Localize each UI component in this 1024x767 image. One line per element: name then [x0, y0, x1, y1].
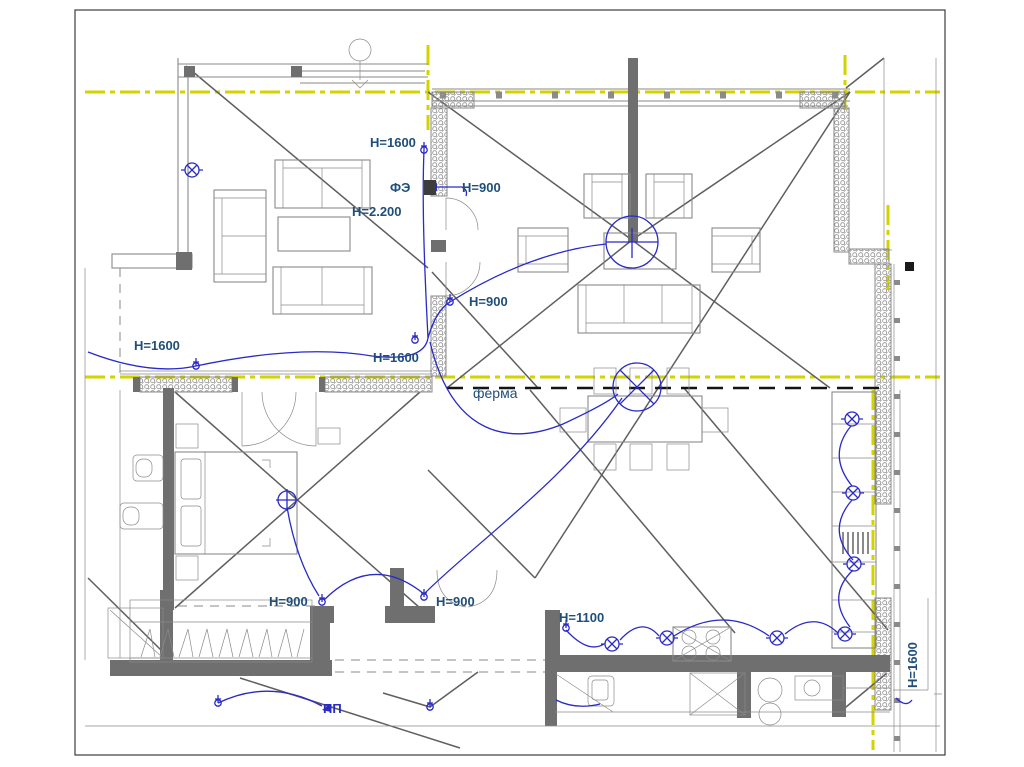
floor-plan-svg: H=1600 ФЭ H=900 H=2.200 H=900 H=1600 H=1… — [0, 0, 1024, 767]
height-label-h1600-top: H=1600 — [370, 135, 416, 150]
height-label-h1600-mid: H=1600 — [373, 350, 419, 365]
height-label-h1600-left: H=1600 — [134, 338, 180, 353]
height-label-h900-bedroom: H=900 — [269, 594, 308, 609]
height-label-h900-top: H=900 — [462, 180, 501, 195]
height-label-h1600-right: H=1600 — [905, 642, 920, 688]
pp-label: ПП — [323, 701, 342, 716]
panel-label-fe: ФЭ — [390, 180, 410, 195]
truss-label: ферма — [473, 385, 518, 401]
height-label-h900-mid: H=900 — [469, 294, 508, 309]
height-label-h2200: H=2.200 — [352, 204, 402, 219]
electrical-panel-icon — [424, 180, 436, 195]
height-label-h900-hall: H=900 — [436, 594, 475, 609]
slide: H=1600 ФЭ H=900 H=2.200 H=900 H=1600 H=1… — [0, 0, 1024, 767]
height-label-h1100: H=1100 — [559, 610, 604, 625]
